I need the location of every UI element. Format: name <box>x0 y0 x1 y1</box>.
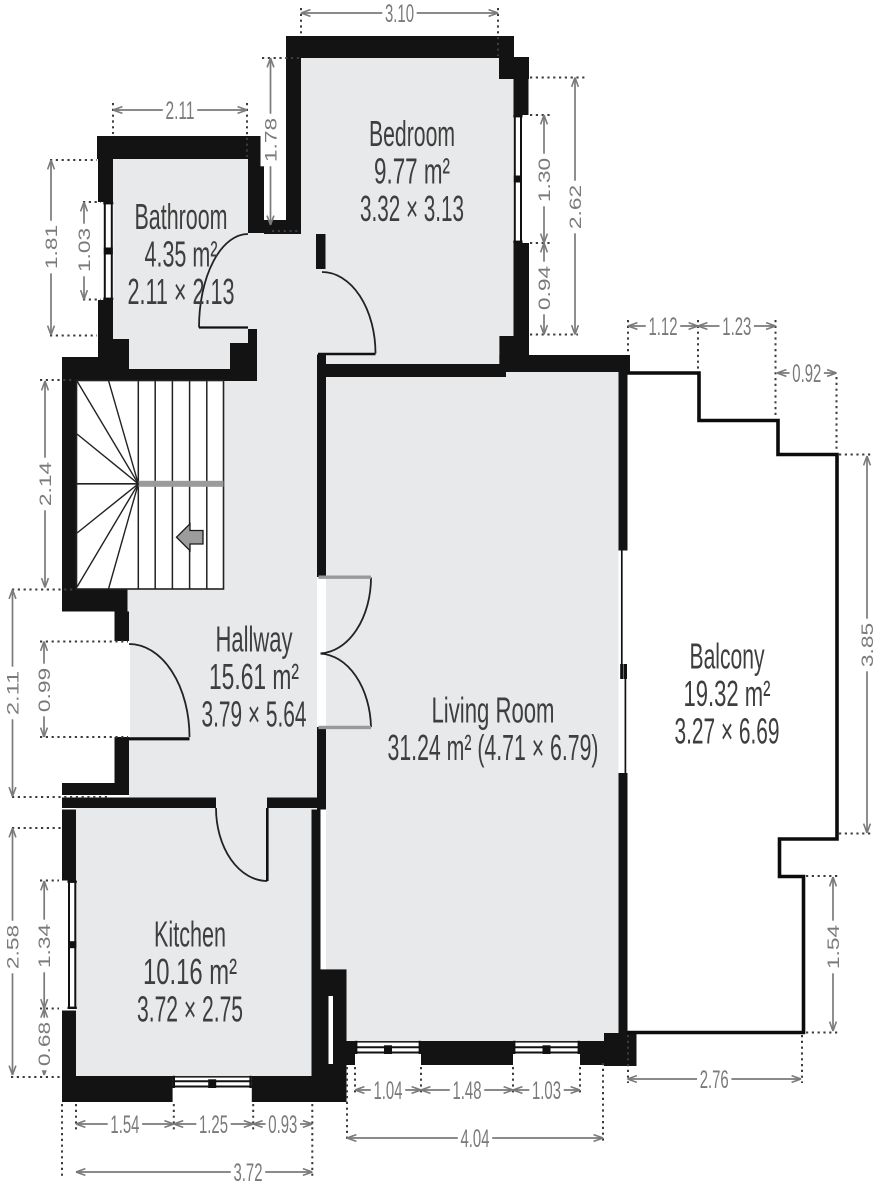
svg-text:1.81: 1.81 <box>43 225 61 269</box>
svg-text:2.14: 2.14 <box>37 462 55 507</box>
svg-text:3.10: 3.10 <box>385 1 414 28</box>
svg-text:2.11 × 2.13: 2.11 × 2.13 <box>128 273 235 312</box>
svg-text:2.11: 2.11 <box>166 98 195 125</box>
svg-text:3.79 × 5.64: 3.79 × 5.64 <box>202 696 307 735</box>
svg-text:9.77 m²: 9.77 m² <box>374 153 450 192</box>
svg-text:4.35 m²: 4.35 m² <box>145 236 218 275</box>
svg-text:2.11: 2.11 <box>4 671 22 715</box>
svg-text:19.32 m²: 19.32 m² <box>684 675 771 714</box>
svg-text:1.23: 1.23 <box>722 314 751 341</box>
svg-text:1.03: 1.03 <box>532 1078 561 1105</box>
svg-text:1.04: 1.04 <box>374 1078 403 1105</box>
svg-text:1.30: 1.30 <box>536 158 554 202</box>
svg-text:4.04: 4.04 <box>461 1126 490 1153</box>
svg-text:Balcony: Balcony <box>690 638 766 677</box>
svg-text:Living Room: Living Room <box>432 692 555 731</box>
svg-text:31.24 m² (4.71 × 6.79): 31.24 m² (4.71 × 6.79) <box>388 729 599 768</box>
svg-text:2.58: 2.58 <box>4 925 22 969</box>
svg-text:Bedroom: Bedroom <box>369 115 455 154</box>
svg-text:Bathroom: Bathroom <box>135 198 228 237</box>
svg-text:1.12: 1.12 <box>649 314 678 341</box>
svg-text:1.25: 1.25 <box>199 1112 228 1139</box>
svg-text:1.54: 1.54 <box>825 925 843 970</box>
svg-text:0.99: 0.99 <box>36 668 54 712</box>
svg-text:2.62: 2.62 <box>567 185 585 229</box>
svg-text:3.85: 3.85 <box>859 623 877 667</box>
svg-text:1.48: 1.48 <box>453 1078 482 1105</box>
svg-text:2.76: 2.76 <box>700 1067 729 1094</box>
svg-text:1.03: 1.03 <box>76 228 94 272</box>
svg-text:3.72: 3.72 <box>234 1160 263 1187</box>
svg-text:3.27 × 6.69: 3.27 × 6.69 <box>675 713 780 752</box>
svg-text:0.92: 0.92 <box>792 361 821 388</box>
svg-text:0.94: 0.94 <box>536 266 554 311</box>
svg-text:0.68: 0.68 <box>36 1022 54 1066</box>
svg-text:1.78: 1.78 <box>262 118 280 162</box>
svg-text:3.72 × 2.75: 3.72 × 2.75 <box>137 991 243 1030</box>
svg-text:1.54: 1.54 <box>110 1112 139 1139</box>
svg-text:15.61 m²: 15.61 m² <box>209 658 299 697</box>
svg-text:10.16 m²: 10.16 m² <box>143 953 237 992</box>
svg-text:Kitchen: Kitchen <box>154 916 226 955</box>
svg-text:1.34: 1.34 <box>36 924 54 969</box>
svg-text:3.32 × 3.13: 3.32 × 3.13 <box>360 190 464 229</box>
svg-text:Hallway: Hallway <box>216 621 294 660</box>
svg-text:0.93: 0.93 <box>268 1112 297 1139</box>
